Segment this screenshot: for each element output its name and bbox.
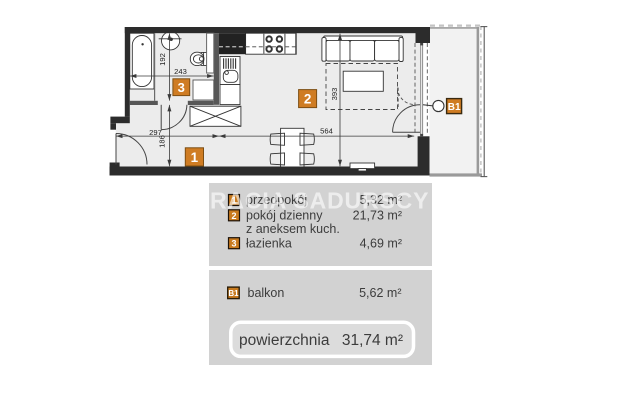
svg-text:B1: B1 [228, 289, 239, 298]
svg-text:balkon: balkon [248, 286, 285, 300]
svg-text:łazienka: łazienka [246, 236, 292, 250]
svg-text:BRACIA SADURSCY: BRACIA SADURSCY [193, 187, 430, 213]
svg-text:powierzchnia: powierzchnia [239, 332, 330, 349]
svg-text:2: 2 [304, 92, 312, 107]
svg-text:B1: B1 [448, 102, 461, 113]
svg-text:243: 243 [174, 67, 187, 76]
svg-text:z aneksem kuch.: z aneksem kuch. [246, 222, 340, 236]
svg-text:3: 3 [178, 80, 185, 95]
svg-text:5,62 m²: 5,62 m² [359, 286, 401, 300]
svg-text:4,69 m²: 4,69 m² [360, 236, 402, 250]
svg-text:186: 186 [158, 135, 167, 148]
svg-text:393: 393 [330, 88, 339, 101]
svg-text:564: 564 [320, 126, 333, 135]
svg-text:3: 3 [231, 239, 236, 249]
svg-text:31,74 m²: 31,74 m² [342, 332, 403, 349]
svg-text:1: 1 [191, 150, 199, 165]
svg-text:192: 192 [158, 53, 167, 66]
